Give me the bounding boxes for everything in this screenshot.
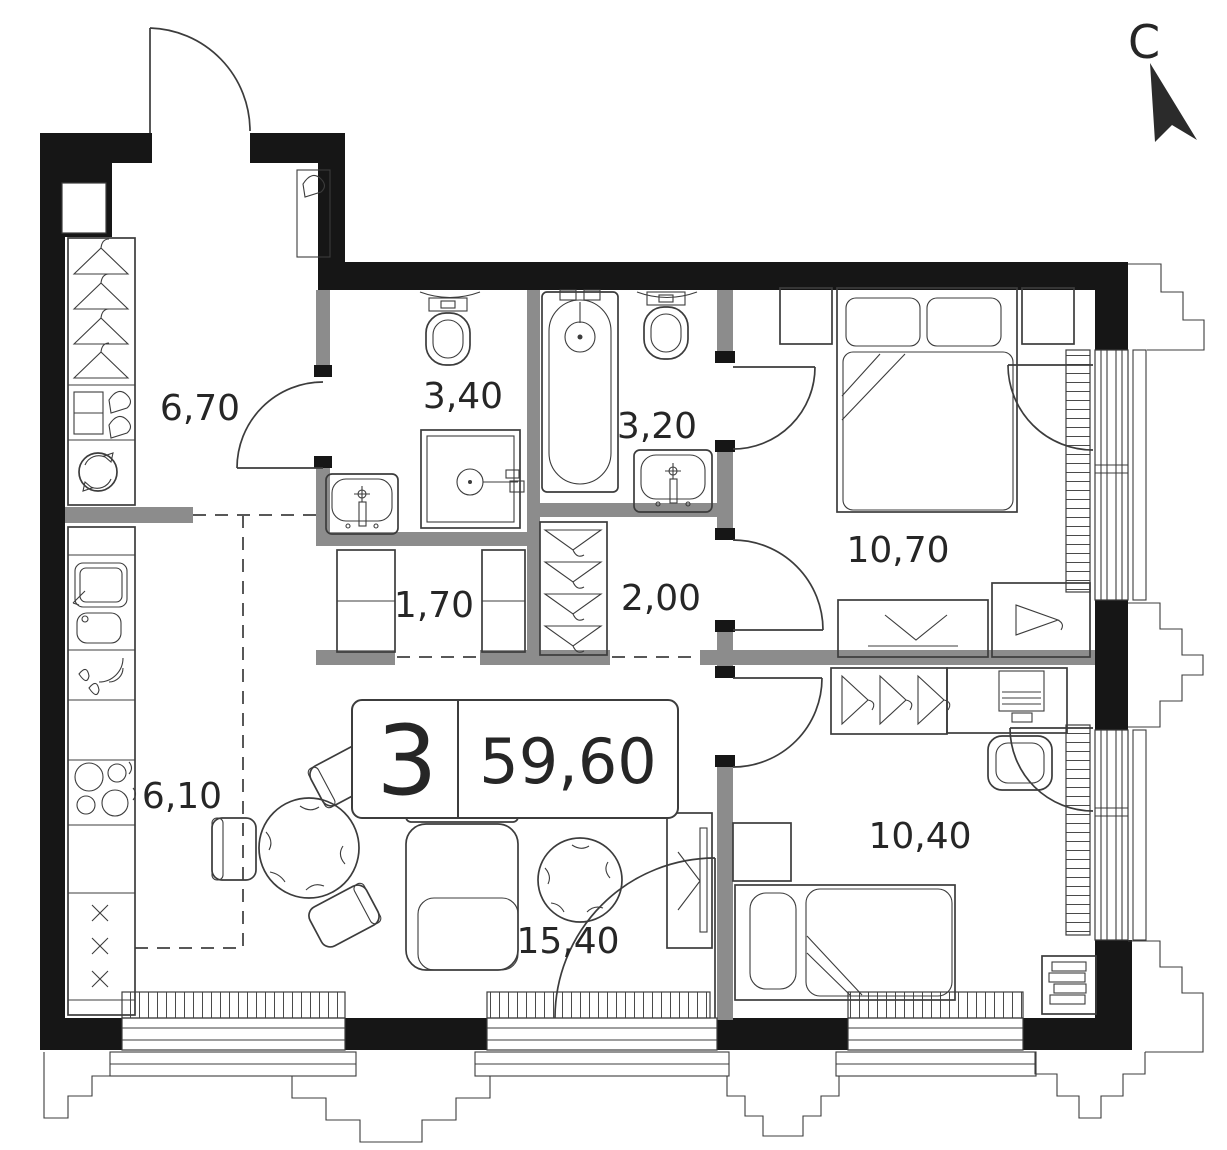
- unit-rooms-count: 3: [376, 705, 437, 817]
- wall-niche: [62, 183, 106, 233]
- radiator: [122, 992, 345, 1018]
- room-area-bathroom: 3,20: [617, 406, 697, 447]
- radiator: [1066, 725, 1090, 935]
- unit-badge: 3 59,60: [352, 700, 678, 818]
- room-area-shower-room: 3,40: [423, 376, 503, 417]
- radiator: [487, 992, 710, 1018]
- room-area-storage: 1,70: [394, 585, 474, 626]
- unit-total-area: 59,60: [479, 725, 657, 798]
- living-window: [487, 992, 717, 1050]
- floor-plan-page: 6,70 3,40 3,20 10,70 1,70 2,00 6,10 15,4…: [0, 0, 1227, 1150]
- radiator: [1066, 350, 1090, 592]
- room-area-living: 15,40: [516, 921, 619, 962]
- kitchen-window: [122, 992, 345, 1050]
- floor-plan: 6,70 3,40 3,20 10,70 1,70 2,00 6,10 15,4…: [0, 0, 1227, 1150]
- background: [0, 0, 1227, 1150]
- north-label: С: [1128, 15, 1160, 69]
- room-area-bedroom-second: 10,40: [868, 816, 971, 857]
- room-area-closet: 2,00: [621, 578, 701, 619]
- room-area-hallway: 6,70: [160, 388, 240, 429]
- room-area-bedroom-master: 10,70: [846, 530, 949, 571]
- room-area-kitchen: 6,10: [142, 776, 222, 817]
